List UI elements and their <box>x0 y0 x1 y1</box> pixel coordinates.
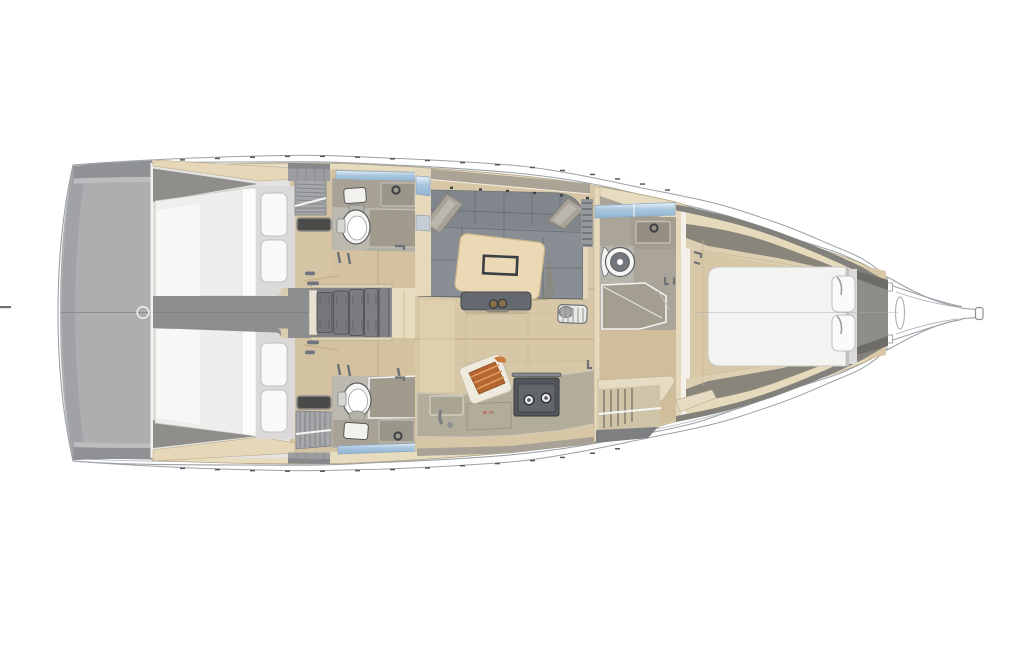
svg-text:BI 75: BI 75 <box>483 410 494 415</box>
